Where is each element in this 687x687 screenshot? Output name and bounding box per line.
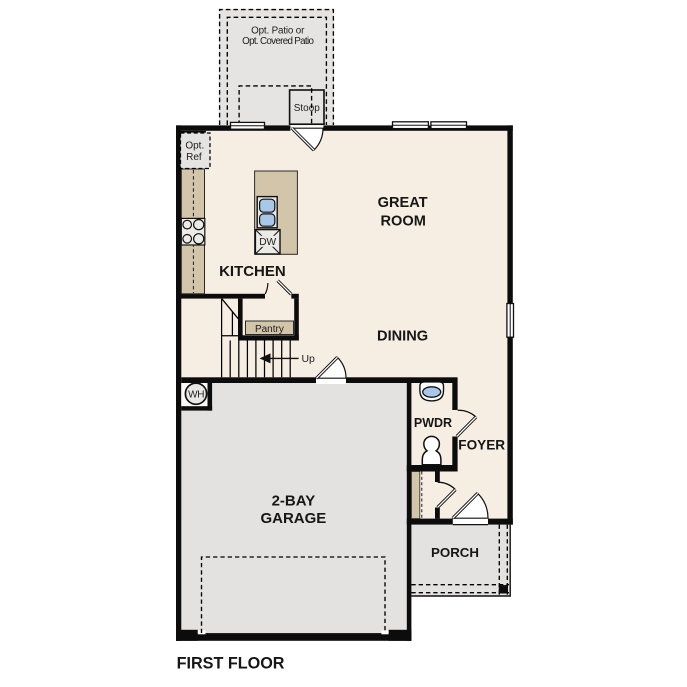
svg-text:Stoop: Stoop	[294, 103, 321, 114]
svg-text:GREAT: GREAT	[378, 195, 428, 211]
svg-text:Ref: Ref	[186, 152, 202, 163]
svg-text:Opt.: Opt.	[185, 141, 204, 152]
svg-text:2-BAY: 2-BAY	[272, 492, 316, 509]
svg-text:DINING: DINING	[377, 328, 428, 344]
svg-text:FOYER: FOYER	[458, 438, 505, 453]
svg-text:ROOM: ROOM	[380, 213, 425, 229]
svg-text:FIRST FLOOR: FIRST FLOOR	[177, 655, 285, 673]
svg-text:Pantry: Pantry	[255, 324, 284, 335]
svg-text:WH: WH	[188, 389, 204, 400]
svg-text:KITCHEN: KITCHEN	[219, 263, 286, 280]
svg-text:DW: DW	[259, 237, 276, 248]
svg-text:Opt. Patio or: Opt. Patio or	[251, 25, 305, 36]
svg-text:Opt. Covered Patio: Opt. Covered Patio	[242, 36, 314, 47]
svg-text:PWDR: PWDR	[414, 416, 452, 430]
svg-text:GARAGE: GARAGE	[260, 510, 326, 527]
svg-text:PORCH: PORCH	[431, 545, 479, 560]
svg-text:Up: Up	[301, 353, 315, 365]
